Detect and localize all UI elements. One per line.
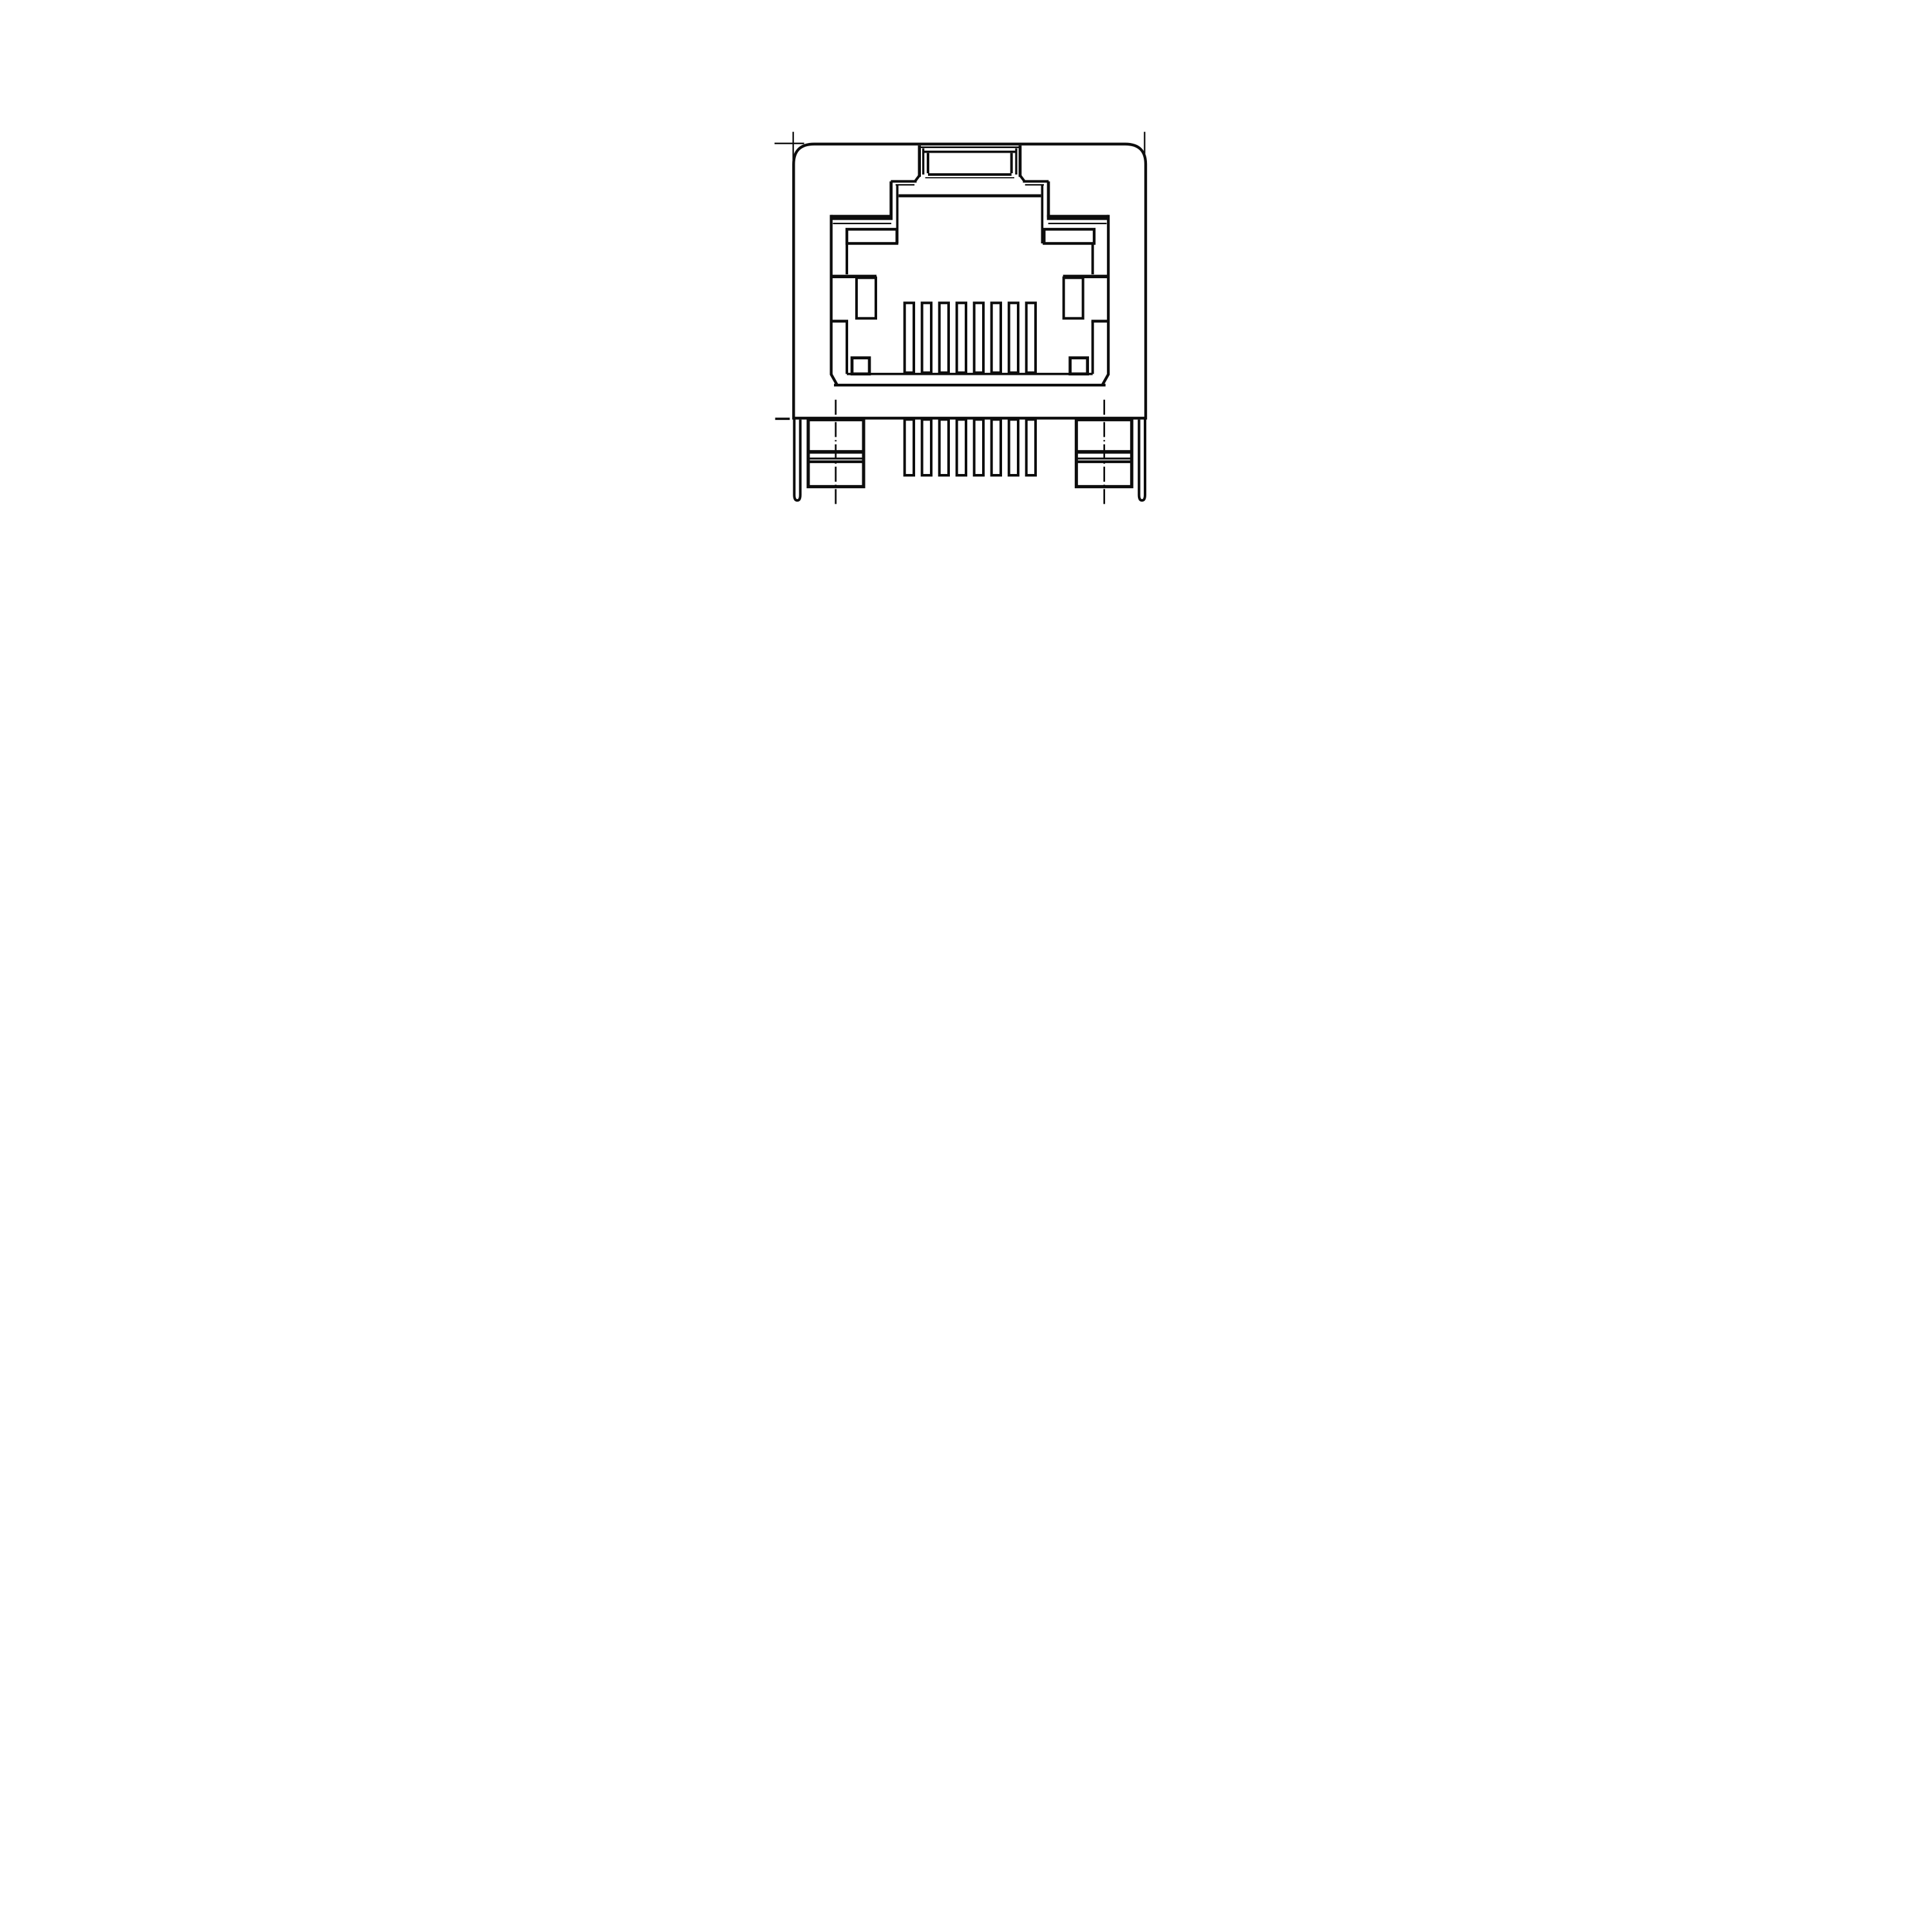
contact-blade-1 (905, 303, 914, 372)
contact-blade-6 (992, 303, 1001, 372)
upper-window-right (1044, 229, 1094, 243)
solder-tail-4 (957, 419, 966, 475)
solder-tail-6 (992, 419, 1001, 475)
mid-window-left (857, 278, 876, 318)
body-outline (793, 144, 1146, 419)
rj45-front-view-drawing (644, 0, 1288, 644)
solder-tail-3 (940, 419, 949, 475)
contact-blade-5 (974, 303, 983, 372)
solder-tail-1 (905, 419, 914, 475)
solder-tail-7 (1009, 419, 1018, 475)
solder-tail-8 (1027, 419, 1036, 475)
contact-blade-2 (922, 303, 931, 372)
upper-window-left (847, 229, 897, 243)
lip-boss-left (852, 358, 869, 374)
contact-blade-4 (957, 303, 966, 372)
mounting-legs (807, 420, 1133, 487)
shield-tab-right (1139, 419, 1145, 500)
contact-blade-3 (940, 303, 949, 372)
solder-tail-5 (974, 419, 983, 475)
contact-blade-7 (1009, 303, 1018, 372)
solder-tail-2 (922, 419, 931, 475)
drawing-canvas (644, 0, 1288, 644)
lip-boss-right (1070, 358, 1088, 374)
mid-window-right (1064, 278, 1083, 318)
solder-tails (905, 419, 1036, 475)
shield-tab-left (794, 419, 800, 500)
contact-blade-8 (1027, 303, 1036, 372)
